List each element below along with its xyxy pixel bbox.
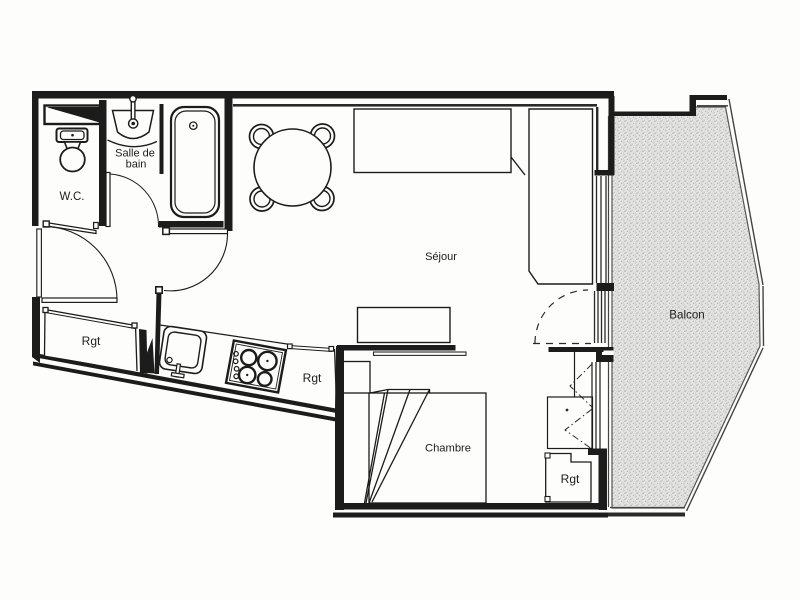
svg-text:Rgt: Rgt <box>303 371 322 385</box>
svg-text:Séjour: Séjour <box>425 251 457 263</box>
svg-text:Balcon: Balcon <box>669 309 704 322</box>
svg-text:W.C.: W.C. <box>60 191 85 203</box>
svg-text:Rgt: Rgt <box>82 334 101 348</box>
svg-text:Chambre: Chambre <box>425 443 471 455</box>
svg-text:bain: bain <box>126 159 147 171</box>
svg-text:Rgt: Rgt <box>561 472 580 486</box>
